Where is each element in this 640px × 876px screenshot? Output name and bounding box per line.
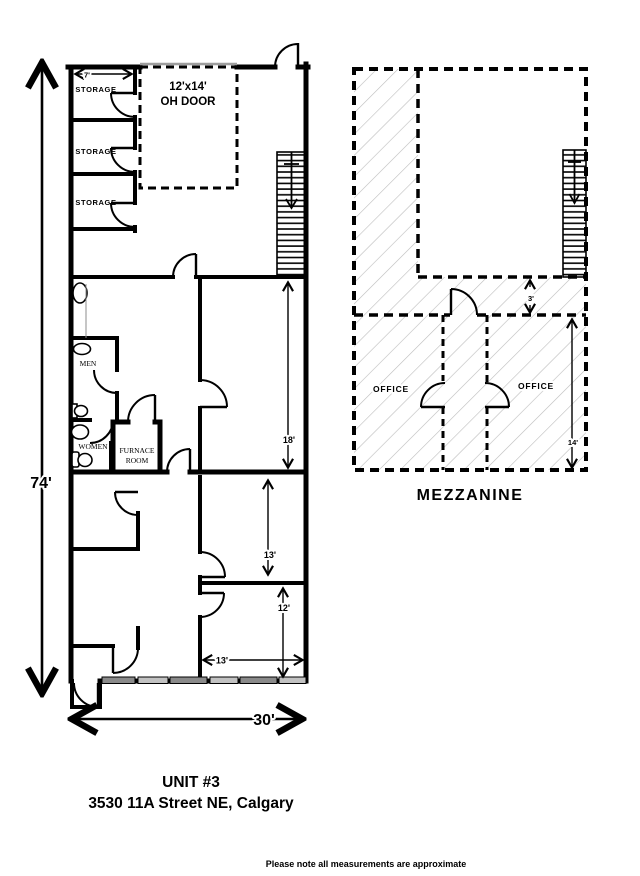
dim-30ft-label: 30' bbox=[253, 712, 275, 729]
washroom-fixtures bbox=[72, 283, 93, 467]
dimension-18ft: 18' bbox=[283, 283, 295, 467]
dim-13ft-label: 13' bbox=[264, 550, 276, 560]
main-floorplan: 12'x14' OH DOOR STORAGE STORAGE STORAGE … bbox=[30, 43, 308, 729]
dim-7ft-label: 7' bbox=[84, 71, 90, 80]
storage-2-label: STORAGE bbox=[75, 147, 116, 156]
dim-18ft-label: 18' bbox=[283, 435, 295, 445]
dim-74ft-label: 74' bbox=[30, 475, 52, 492]
dimension-7ft: 7' bbox=[76, 71, 131, 80]
mezzanine-stairs-icon bbox=[563, 150, 586, 277]
storage-1-label: STORAGE bbox=[75, 85, 116, 94]
mezzanine-hatch bbox=[354, 69, 586, 470]
office-right-label: OFFICE bbox=[518, 381, 554, 391]
dimension-13ft-room: 13' bbox=[264, 481, 276, 574]
storage-3-label: STORAGE bbox=[75, 198, 116, 207]
dim-14ft-label: 14' bbox=[568, 438, 578, 447]
unit-title: UNIT #3 bbox=[162, 774, 220, 791]
mid-wall-lower bbox=[71, 449, 306, 472]
women-label: WOMEN bbox=[78, 442, 108, 451]
main-outer-walls bbox=[68, 64, 308, 681]
mezzanine-open-edge bbox=[418, 69, 586, 277]
office-left-label: OFFICE bbox=[373, 384, 409, 394]
dim-12ft-label: 12' bbox=[278, 603, 290, 613]
furnace-room-label-line1: FURNACE bbox=[119, 446, 154, 455]
men-label: MEN bbox=[80, 359, 97, 368]
dimension-74ft: 74' bbox=[30, 64, 52, 692]
title-block: UNIT #3 3530 11A Street NE, Calgary bbox=[88, 774, 294, 812]
lower-left-walls bbox=[71, 492, 138, 673]
dim-13ft-width-label: 13' bbox=[216, 656, 228, 666]
corridor-wall-lower bbox=[200, 477, 306, 681]
floorplan-page: 12'x14' OH DOOR STORAGE STORAGE STORAGE … bbox=[0, 0, 640, 876]
address-title: 3530 11A Street NE, Calgary bbox=[88, 795, 294, 812]
dimension-30ft: 30' bbox=[73, 712, 301, 729]
corridor-wall-upper bbox=[200, 277, 227, 472]
mezzanine-floorplan: 3' OFFICE OFFICE 14' MEZZANINE bbox=[354, 69, 586, 504]
oh-door-label-line1: 12'x14' bbox=[169, 81, 207, 93]
top-entry-door bbox=[275, 43, 298, 67]
dimension-13ft-width: 13' bbox=[204, 656, 302, 666]
oh-door-label-line2: OH DOOR bbox=[161, 96, 217, 108]
dim-3ft-label: 3' bbox=[528, 294, 534, 303]
main-stairs-icon bbox=[277, 152, 306, 277]
furnace-room-label-line2: ROOM bbox=[126, 456, 149, 465]
storefront-windows bbox=[102, 677, 306, 684]
entry-door bbox=[72, 681, 100, 707]
footer-note: Please note all measurements are approxi… bbox=[266, 859, 467, 869]
dimension-12ft-room: 12' bbox=[278, 589, 290, 676]
mezzanine-label: MEZZANINE bbox=[417, 487, 524, 504]
mid-wall-upper bbox=[71, 254, 306, 277]
floorplan-canvas: 12'x14' OH DOOR STORAGE STORAGE STORAGE … bbox=[0, 0, 640, 876]
